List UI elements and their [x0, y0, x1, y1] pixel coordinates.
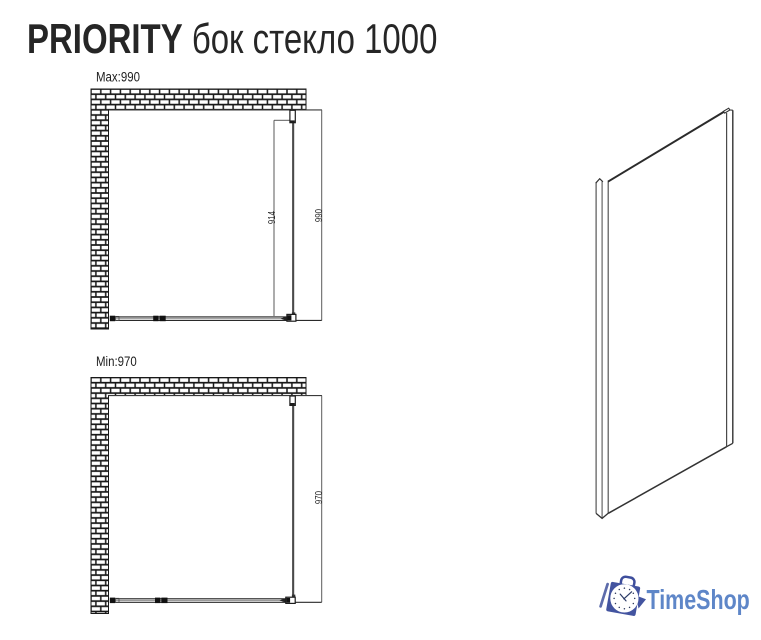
svg-text:Max:990: Max:990	[96, 70, 140, 85]
svg-text:990: 990	[313, 209, 324, 222]
svg-text:970: 970	[313, 491, 324, 504]
svg-text:914: 914	[266, 211, 277, 224]
svg-text:TimeShop: TimeShop	[647, 586, 750, 616]
svg-text:Min:970: Min:970	[96, 354, 137, 369]
svg-text:PRIORITY бок стекло 1000: PRIORITY бок стекло 1000	[27, 15, 437, 62]
